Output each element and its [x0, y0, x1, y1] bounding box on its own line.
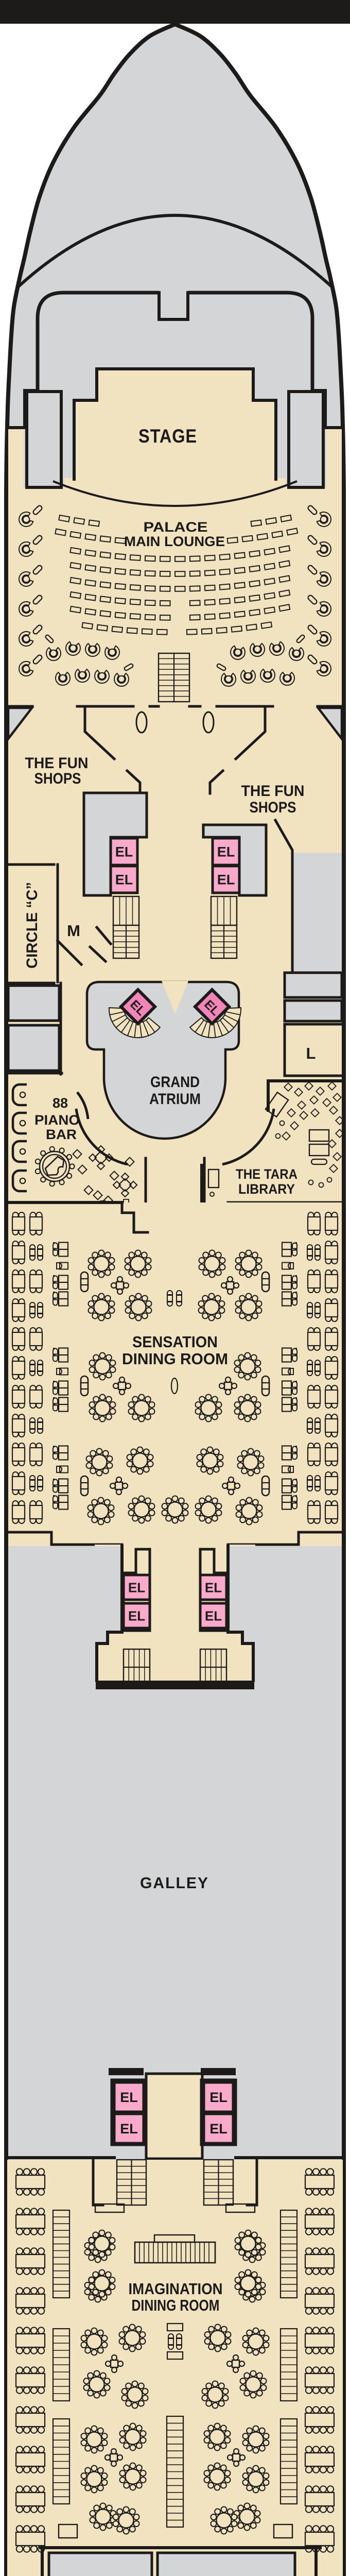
svg-text:ATRIUM: ATRIUM [149, 1091, 201, 1108]
svg-text:LIBRARY: LIBRARY [238, 1181, 295, 1197]
svg-text:EL: EL [205, 1608, 222, 1623]
svg-text:DINING ROOM: DINING ROOM [122, 1350, 228, 1368]
svg-text:EL: EL [209, 2121, 227, 2137]
svg-text:EL: EL [217, 844, 235, 860]
svg-text:EL: EL [120, 2090, 138, 2105]
svg-text:SENSATION: SENSATION [132, 1333, 218, 1351]
svg-text:GRAND: GRAND [150, 1074, 200, 1091]
svg-text:MAIN LOUNGE: MAIN LOUNGE [124, 534, 225, 549]
svg-text:EL: EL [115, 844, 133, 860]
svg-text:EL: EL [115, 872, 133, 888]
svg-text:DINING ROOM: DINING ROOM [132, 2296, 220, 2314]
svg-text:88: 88 [52, 1095, 68, 1111]
svg-text:THE TARA: THE TARA [236, 1166, 297, 1182]
svg-text:BAR: BAR [46, 1127, 77, 1142]
svg-text:M: M [67, 922, 80, 940]
svg-text:PIANO: PIANO [34, 1112, 80, 1128]
svg-text:SHOPS: SHOPS [250, 799, 296, 816]
svg-text:IMAGINATION: IMAGINATION [129, 2280, 223, 2298]
svg-text:CIRCLE “C”: CIRCLE “C” [24, 882, 41, 969]
svg-text:PALACE: PALACE [144, 519, 208, 535]
svg-text:SHOPS: SHOPS [34, 770, 81, 787]
svg-text:STAGE: STAGE [138, 426, 197, 447]
svg-text:EL: EL [217, 872, 235, 888]
svg-text:EL: EL [128, 1608, 145, 1623]
svg-text:EL: EL [209, 2090, 227, 2105]
svg-text:THE FUN: THE FUN [25, 755, 89, 772]
svg-text:EL: EL [128, 1580, 145, 1595]
svg-text:L: L [306, 1044, 316, 1062]
svg-text:EL: EL [205, 1580, 222, 1595]
svg-text:THE FUN: THE FUN [241, 783, 305, 800]
svg-text:EL: EL [120, 2121, 138, 2137]
svg-text:GALLEY: GALLEY [140, 1874, 209, 1892]
